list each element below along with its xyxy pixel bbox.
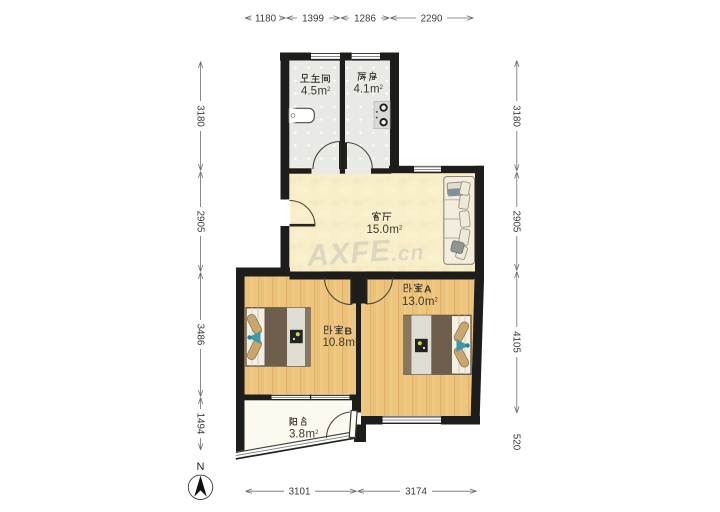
svg-text:4.5m2: 4.5m2 [301, 85, 331, 97]
svg-text:13.0m2: 13.0m2 [402, 296, 438, 308]
svg-text:3.8m2: 3.8m2 [289, 428, 319, 440]
svg-text:1494: 1494 [194, 413, 205, 435]
svg-text:B: B [345, 325, 353, 337]
svg-text:520: 520 [511, 434, 522, 451]
svg-text:15.0m2: 15.0m2 [367, 224, 403, 236]
svg-text:A: A [424, 283, 432, 295]
svg-text:N: N [197, 461, 205, 473]
svg-text:3174: 3174 [405, 487, 427, 498]
svg-text:3101: 3101 [289, 487, 311, 498]
svg-text:2905: 2905 [194, 211, 205, 233]
svg-text:3486: 3486 [194, 324, 205, 346]
svg-text:4105: 4105 [511, 331, 522, 353]
svg-text:2290: 2290 [421, 13, 443, 24]
svg-text:4.1m2: 4.1m2 [354, 84, 384, 96]
svg-text:3180: 3180 [194, 105, 205, 127]
svg-text:1399: 1399 [302, 13, 324, 24]
svg-text:1180: 1180 [255, 13, 277, 24]
svg-text:3180: 3180 [511, 105, 522, 127]
svg-text:10.8m2: 10.8m2 [323, 337, 359, 349]
svg-text:2905: 2905 [511, 211, 522, 233]
svg-text:1286: 1286 [354, 13, 376, 24]
